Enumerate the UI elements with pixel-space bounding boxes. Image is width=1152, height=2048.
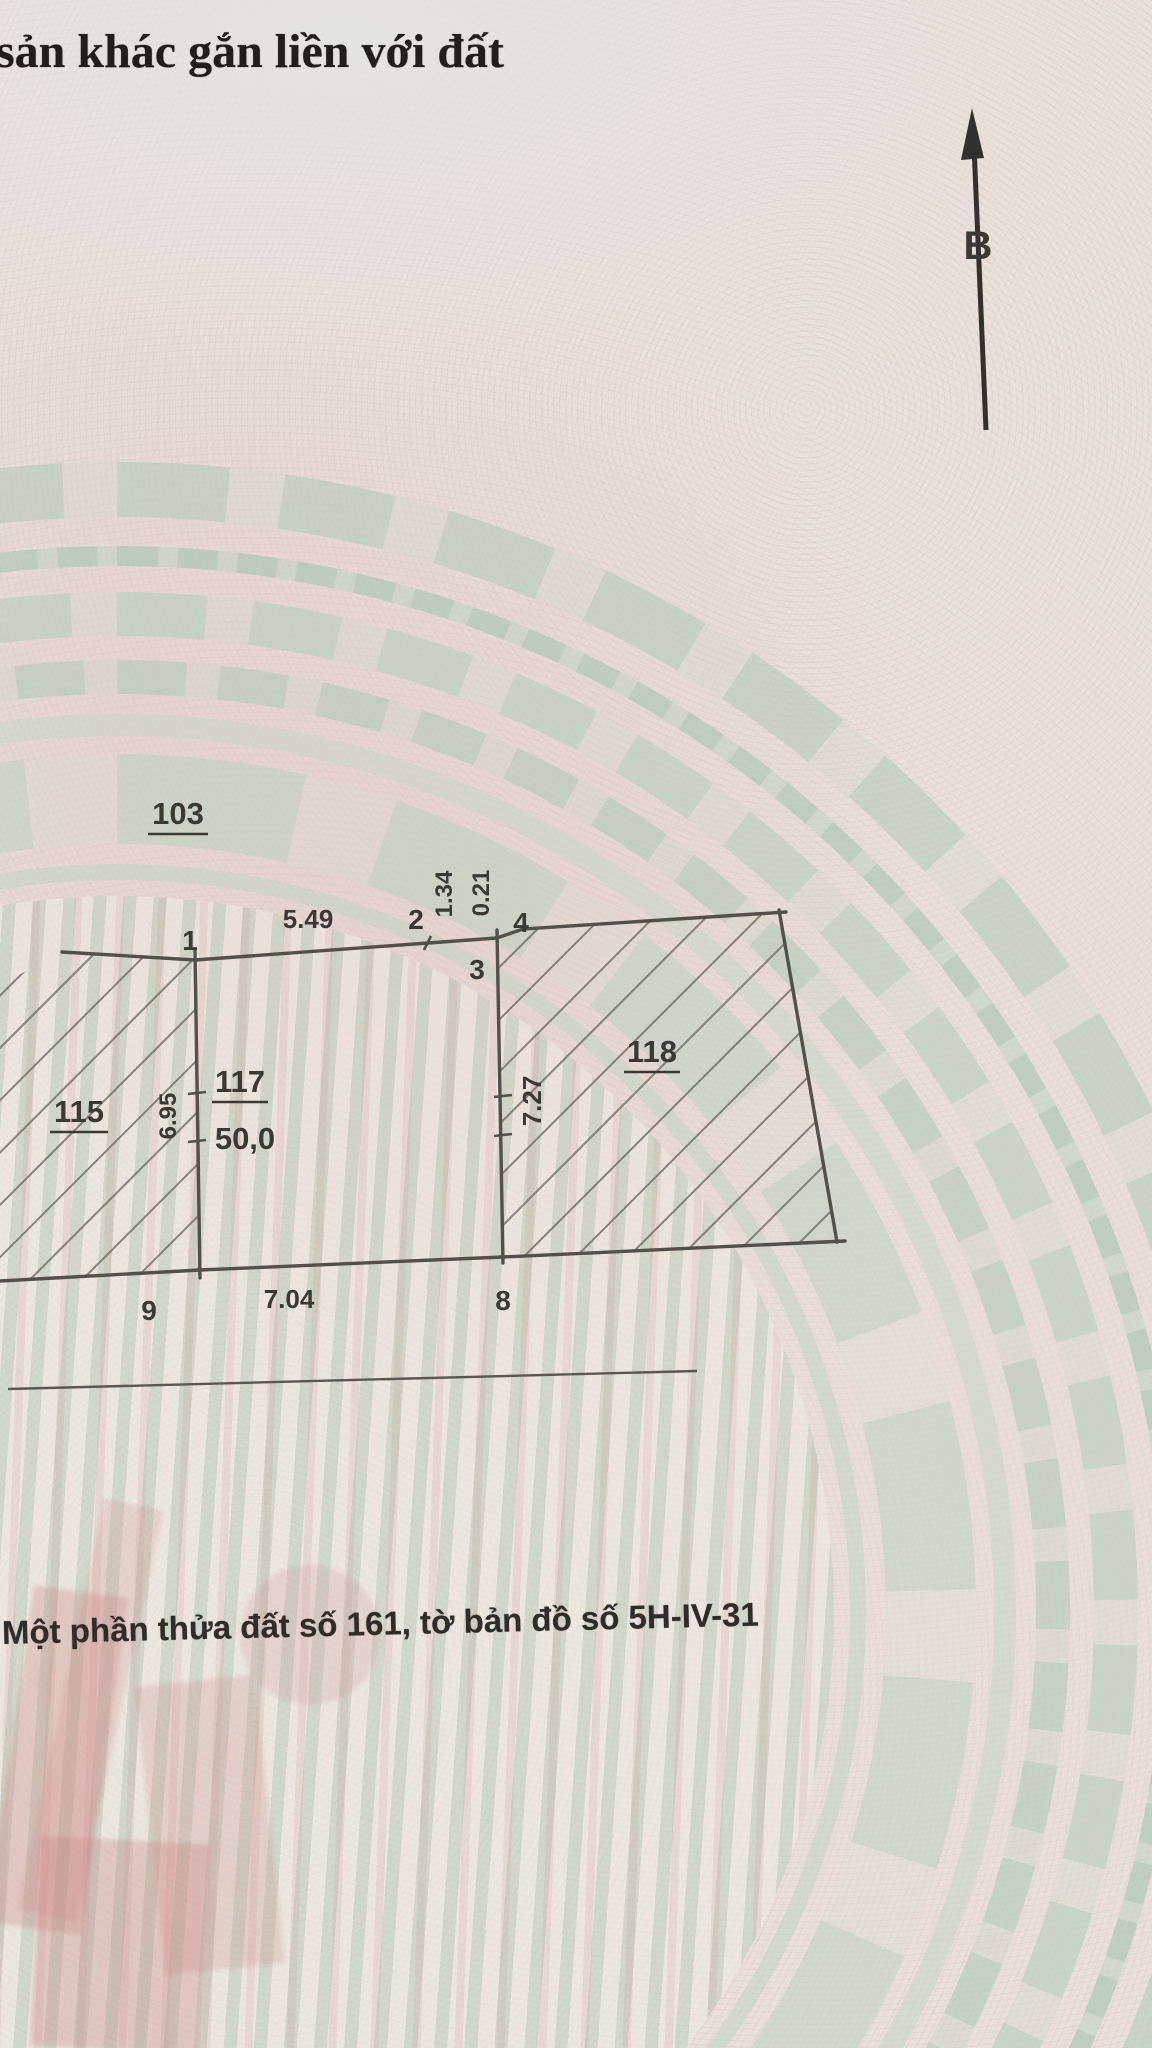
parcel-118-label: 118 — [627, 1034, 677, 1069]
certificate-page: sản khác gắn liền với đất — [0, 0, 1152, 2048]
north-label: B — [964, 224, 993, 268]
parcel-118-hatch — [497, 913, 837, 1257]
parcel-117-area-label: 50,0 — [215, 1121, 275, 1156]
parcel-103-label: 103 — [152, 796, 204, 831]
dim-left-label: 6.95 — [155, 1093, 182, 1140]
dim-top-label: 5.49 — [283, 904, 334, 934]
point-1-label: 1 — [182, 925, 198, 956]
dimension-labels: 5.49 7.04 1.34 0.21 6.95 7.27 — [155, 870, 547, 1314]
point-9-label: 9 — [141, 1295, 157, 1326]
dim-jog-b-label: 0.21 — [468, 870, 495, 917]
dim-bottom-label: 7.04 — [264, 1284, 315, 1314]
cadastral-diagram: B 103 115 117 50,0 118 1 2 3 4 8 9 5.49 … — [0, 0, 1152, 2048]
parcel-117-label: 117 — [215, 1064, 265, 1099]
parcel-115-label: 115 — [54, 1094, 104, 1129]
dim-right-label: 7.27 — [517, 1076, 547, 1127]
point-4-label: 4 — [513, 907, 529, 938]
dim-jog-a-label: 1.34 — [431, 870, 458, 917]
separator-line — [8, 1371, 697, 1389]
survey-ticks — [188, 936, 512, 1142]
point-8-label: 8 — [495, 1285, 511, 1316]
point-2-label: 2 — [408, 904, 424, 935]
north-arrow-icon: B — [961, 108, 992, 430]
point-3-label: 3 — [469, 954, 485, 985]
